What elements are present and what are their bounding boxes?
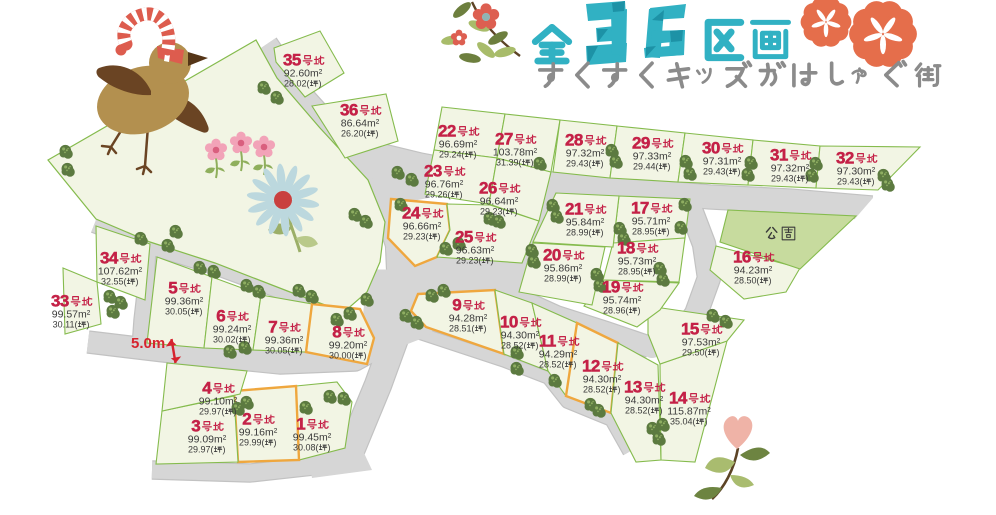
svg-text:29.23(: 29.23(	[480, 207, 506, 217]
svg-text:28.51(: 28.51(	[449, 324, 475, 334]
svg-text:26.20(: 26.20(	[341, 129, 367, 139]
svg-text:): )	[574, 360, 577, 370]
svg-text:): )	[667, 227, 670, 237]
svg-text:28.02(: 28.02(	[284, 79, 310, 89]
svg-text:): )	[531, 158, 534, 168]
svg-text:): )	[274, 438, 277, 448]
svg-text:28.52(: 28.52(	[625, 406, 651, 416]
svg-text:28.99(: 28.99(	[566, 228, 592, 238]
svg-text:29.97(: 29.97(	[199, 407, 225, 417]
svg-text:): )	[717, 348, 720, 358]
svg-text:): )	[248, 335, 251, 345]
svg-text:30.11(: 30.11(	[53, 320, 78, 330]
svg-text:30.08(: 30.08(	[293, 443, 319, 453]
svg-text:32.55(: 32.55(	[101, 277, 127, 287]
svg-text:): )	[579, 274, 582, 284]
svg-text:29.43(: 29.43(	[703, 167, 729, 177]
svg-text:): )	[806, 174, 809, 184]
svg-text:): )	[300, 346, 303, 356]
svg-text:): )	[705, 417, 708, 427]
svg-text:): )	[364, 351, 367, 361]
svg-text:): )	[769, 276, 772, 286]
svg-text:): )	[200, 307, 203, 317]
svg-text:5.0m: 5.0m	[131, 335, 165, 352]
svg-text:29.23(: 29.23(	[456, 256, 482, 266]
svg-text:29.97(: 29.97(	[188, 445, 214, 455]
svg-text:28.96(: 28.96(	[603, 306, 629, 316]
svg-text:): )	[491, 256, 494, 266]
svg-text:): )	[738, 167, 741, 177]
svg-text:): )	[319, 79, 322, 89]
svg-text:29.43(: 29.43(	[566, 159, 592, 169]
svg-text:28.99(: 28.99(	[544, 274, 570, 284]
svg-text:28.95(: 28.95(	[632, 227, 658, 237]
svg-text:): )	[223, 445, 226, 455]
svg-text:29.43(: 29.43(	[771, 174, 797, 184]
svg-text:): )	[328, 443, 331, 453]
svg-text:): )	[87, 320, 90, 330]
svg-text:): )	[872, 177, 875, 187]
svg-text:): )	[638, 306, 641, 316]
svg-text:28.52(: 28.52(	[583, 385, 609, 395]
svg-text:29.43(: 29.43(	[837, 177, 863, 187]
svg-text:29.44(: 29.44(	[633, 162, 659, 172]
svg-text:): )	[668, 162, 671, 172]
svg-text:): )	[515, 207, 518, 217]
svg-text:30.05(: 30.05(	[265, 346, 291, 356]
svg-text:): )	[601, 228, 604, 238]
svg-text:): )	[484, 324, 487, 334]
svg-text:): )	[601, 159, 604, 169]
svg-text:29.23(: 29.23(	[403, 232, 429, 242]
svg-text:): )	[376, 129, 379, 139]
svg-text:30.00(: 30.00(	[329, 351, 355, 361]
svg-text:30.02(: 30.02(	[213, 335, 239, 345]
svg-text:): )	[234, 407, 237, 417]
svg-text:): )	[474, 150, 477, 160]
svg-text:): )	[660, 406, 663, 416]
svg-text:30.05(: 30.05(	[165, 307, 191, 317]
svg-text:): )	[460, 190, 463, 200]
svg-text:29.26(: 29.26(	[425, 190, 451, 200]
svg-text:28.95(: 28.95(	[618, 267, 644, 277]
svg-text:): )	[653, 267, 656, 277]
svg-text:29.24(: 29.24(	[439, 150, 465, 160]
svg-text:): )	[438, 232, 441, 242]
svg-text:35.04(: 35.04(	[670, 417, 696, 427]
svg-text:29.50(: 29.50(	[682, 348, 708, 358]
svg-text:): )	[618, 385, 621, 395]
svg-text:29.99(: 29.99(	[239, 438, 265, 448]
svg-text:): )	[136, 277, 139, 287]
svg-text:28.52(: 28.52(	[539, 360, 565, 370]
svg-text:28.50(: 28.50(	[734, 276, 760, 286]
svg-text:28.52(: 28.52(	[501, 341, 527, 351]
svg-text:31.39(: 31.39(	[496, 158, 522, 168]
